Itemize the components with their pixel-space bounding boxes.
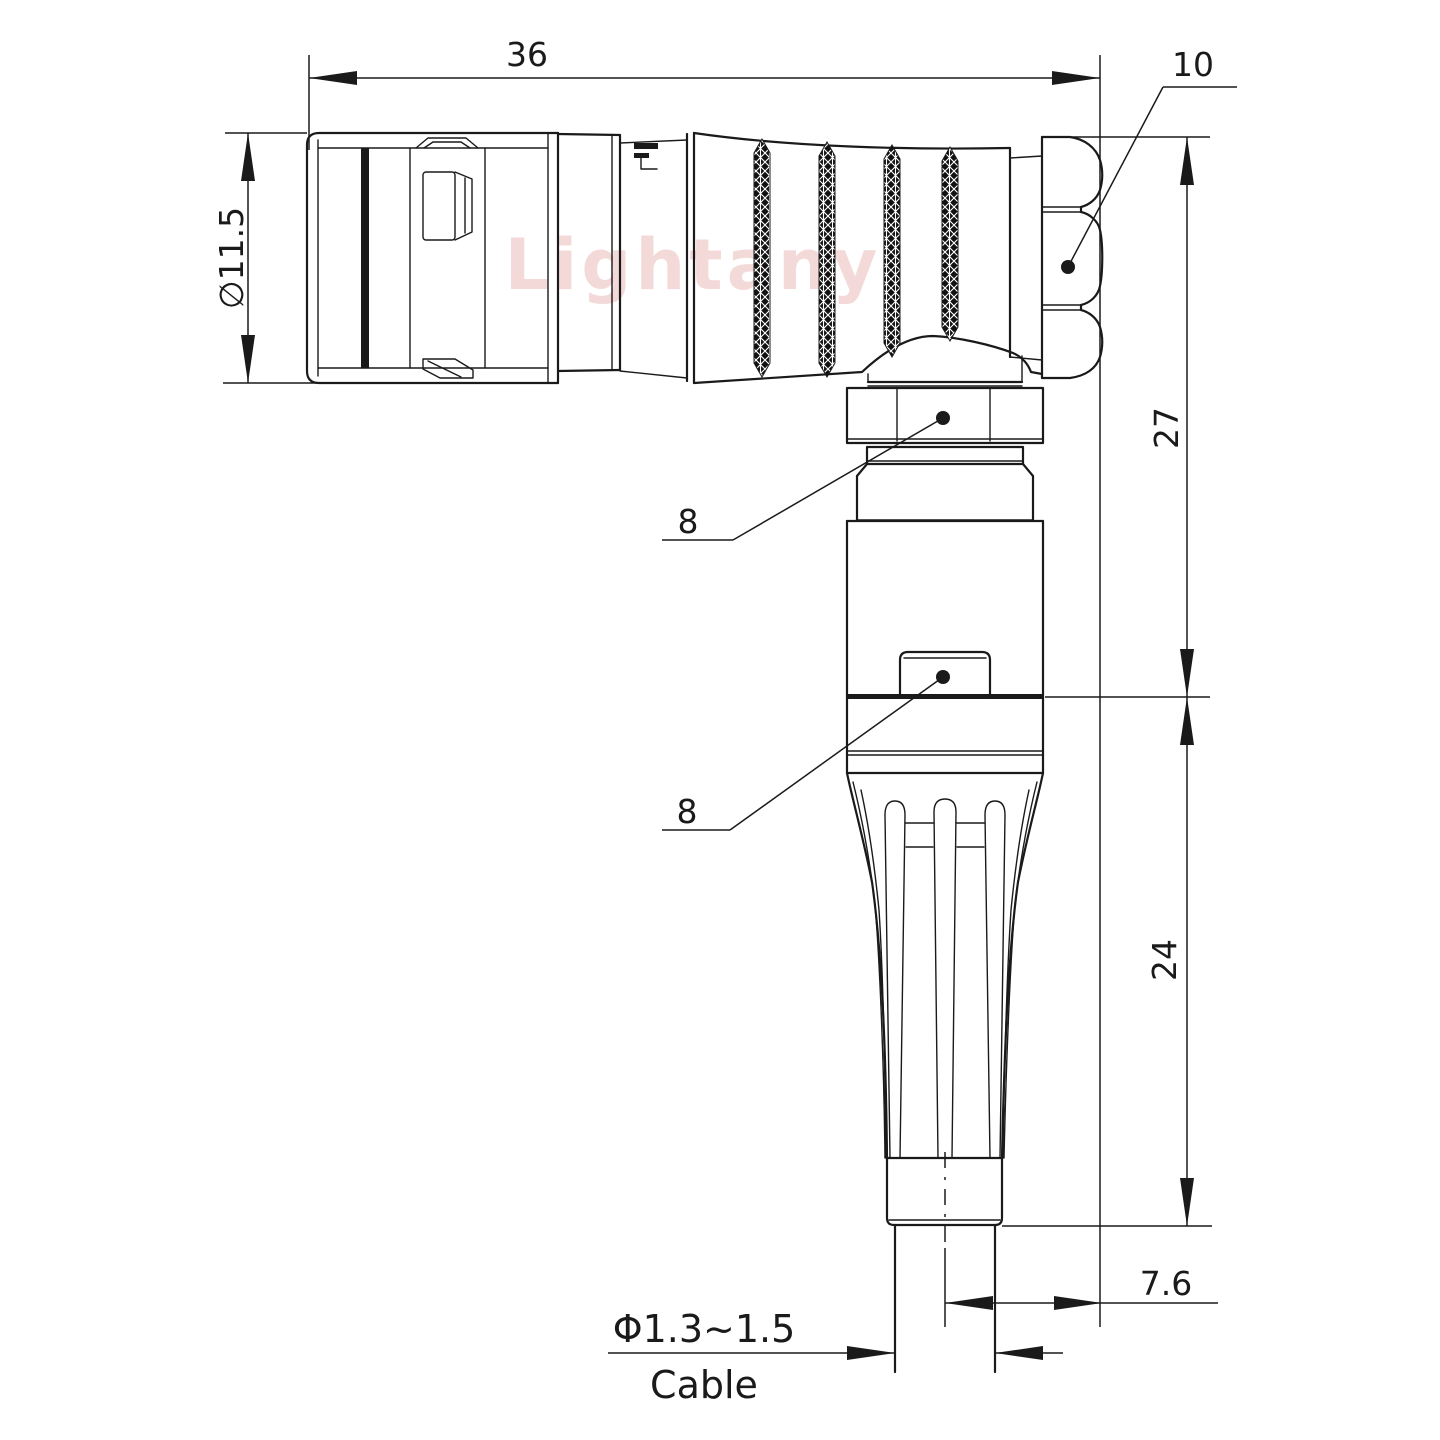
- technical-drawing-canvas: Lightany: [0, 0, 1440, 1440]
- dim-label-upper-height: 27: [1147, 407, 1186, 449]
- dim-label-cable-diameter: Φ1.3~1.5: [613, 1307, 796, 1351]
- dim-label-overall-length: 36: [506, 35, 548, 74]
- callout-label-body-hex: 8: [677, 792, 698, 831]
- connector-drawing: Lightany: [0, 0, 1440, 1440]
- knurl-band: [942, 147, 958, 341]
- dim-label-front-diameter: ∅11.5: [212, 207, 251, 309]
- callout-label-nut-face: 10: [1172, 45, 1214, 84]
- knurl-band: [884, 145, 900, 357]
- callout-label-coupling-hex: 8: [678, 502, 699, 541]
- cable-text-label: Cable: [650, 1363, 758, 1407]
- dim-label-cable-offset: 7.6: [1140, 1264, 1192, 1303]
- knurl-band: [754, 139, 770, 377]
- dim-label-lower-height: 24: [1145, 939, 1184, 981]
- sleeve-band: [361, 148, 369, 368]
- knurl-band: [819, 142, 835, 377]
